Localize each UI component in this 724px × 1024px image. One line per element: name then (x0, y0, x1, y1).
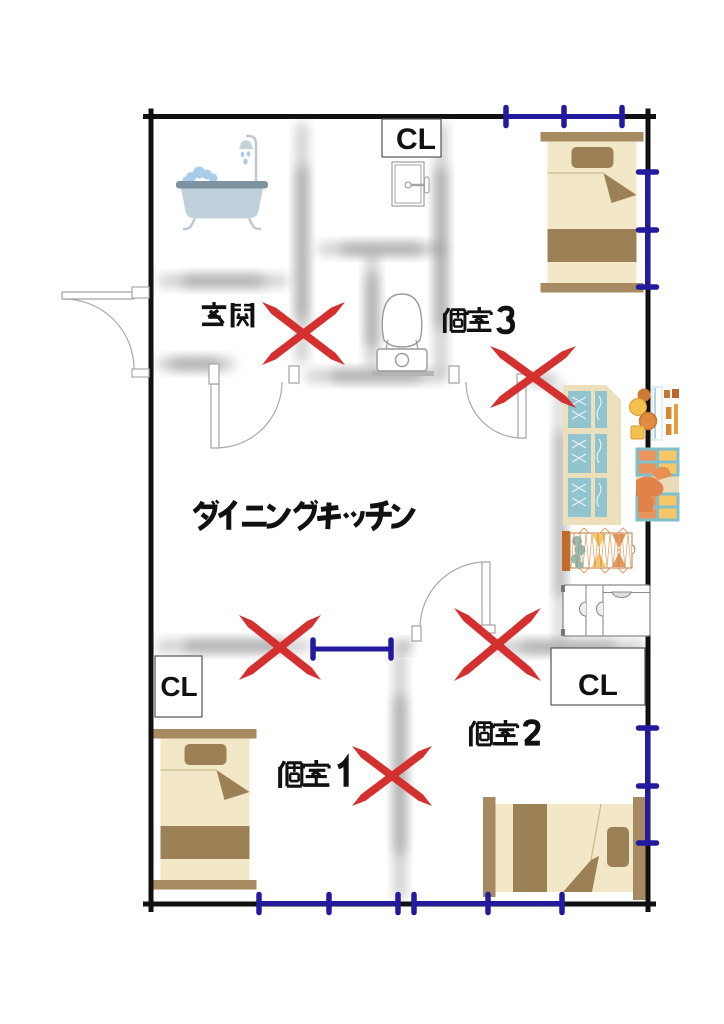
svg-text:CL: CL (160, 671, 197, 702)
svg-text:CL: CL (396, 123, 436, 156)
svg-text:CL: CL (578, 669, 618, 702)
